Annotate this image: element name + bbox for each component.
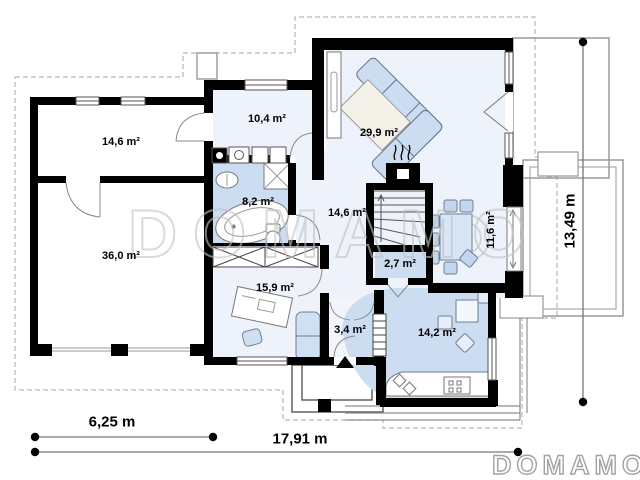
room-label-garage: 36,0 m² [102, 250, 140, 262]
room-label-utility: 10,4 m² [248, 113, 286, 125]
room-label-hall: 14,6 m² [328, 207, 366, 219]
wardrobe [213, 247, 318, 267]
kitchen-counter [386, 372, 496, 396]
porch-pillar [318, 399, 331, 412]
room-label-office: 15,9 m² [256, 282, 294, 294]
dimension-label-total-depth: 13,49 m [562, 193, 579, 248]
tv-unit [327, 52, 341, 138]
room-label-dining: 11,6 m² [485, 211, 497, 248]
shower [264, 163, 290, 189]
dimension-line-total-depth [579, 38, 587, 406]
dimension-label-total-width: 17,91 m [272, 431, 327, 448]
chimney [197, 53, 217, 79]
washbasin [216, 172, 238, 188]
dimension-line-total-width [31, 448, 522, 456]
brand-logo: DOMAMO [492, 452, 640, 479]
entry-shelf [373, 314, 386, 356]
room-label-bathroom: 8,2 m² [242, 196, 274, 208]
room-label-pantry: 2,7 m² [384, 258, 416, 270]
dimension-label-garage-width: 6,25 m [89, 414, 136, 431]
room-label-living-room: 29,9 m² [360, 127, 398, 139]
dimension-line-garage-width [31, 433, 217, 441]
laundry-appliances [212, 147, 286, 163]
room-label-entry: 3,4 m² [334, 324, 366, 336]
front-door [334, 356, 356, 368]
fireplace-insert [397, 169, 409, 179]
terrace [513, 38, 623, 316]
terrace-sliding-door [507, 207, 521, 271]
office-sofa [296, 312, 320, 360]
room-label-kitchen: 14,2 m² [418, 327, 456, 339]
floor-plan-drawing [0, 0, 640, 480]
floor-plan-page: DOMAMO DOMAMO 14,6 m² 36,0 m² 10,4 m² 8,… [0, 0, 640, 480]
room-label-storage: 14,6 m² [102, 136, 140, 148]
